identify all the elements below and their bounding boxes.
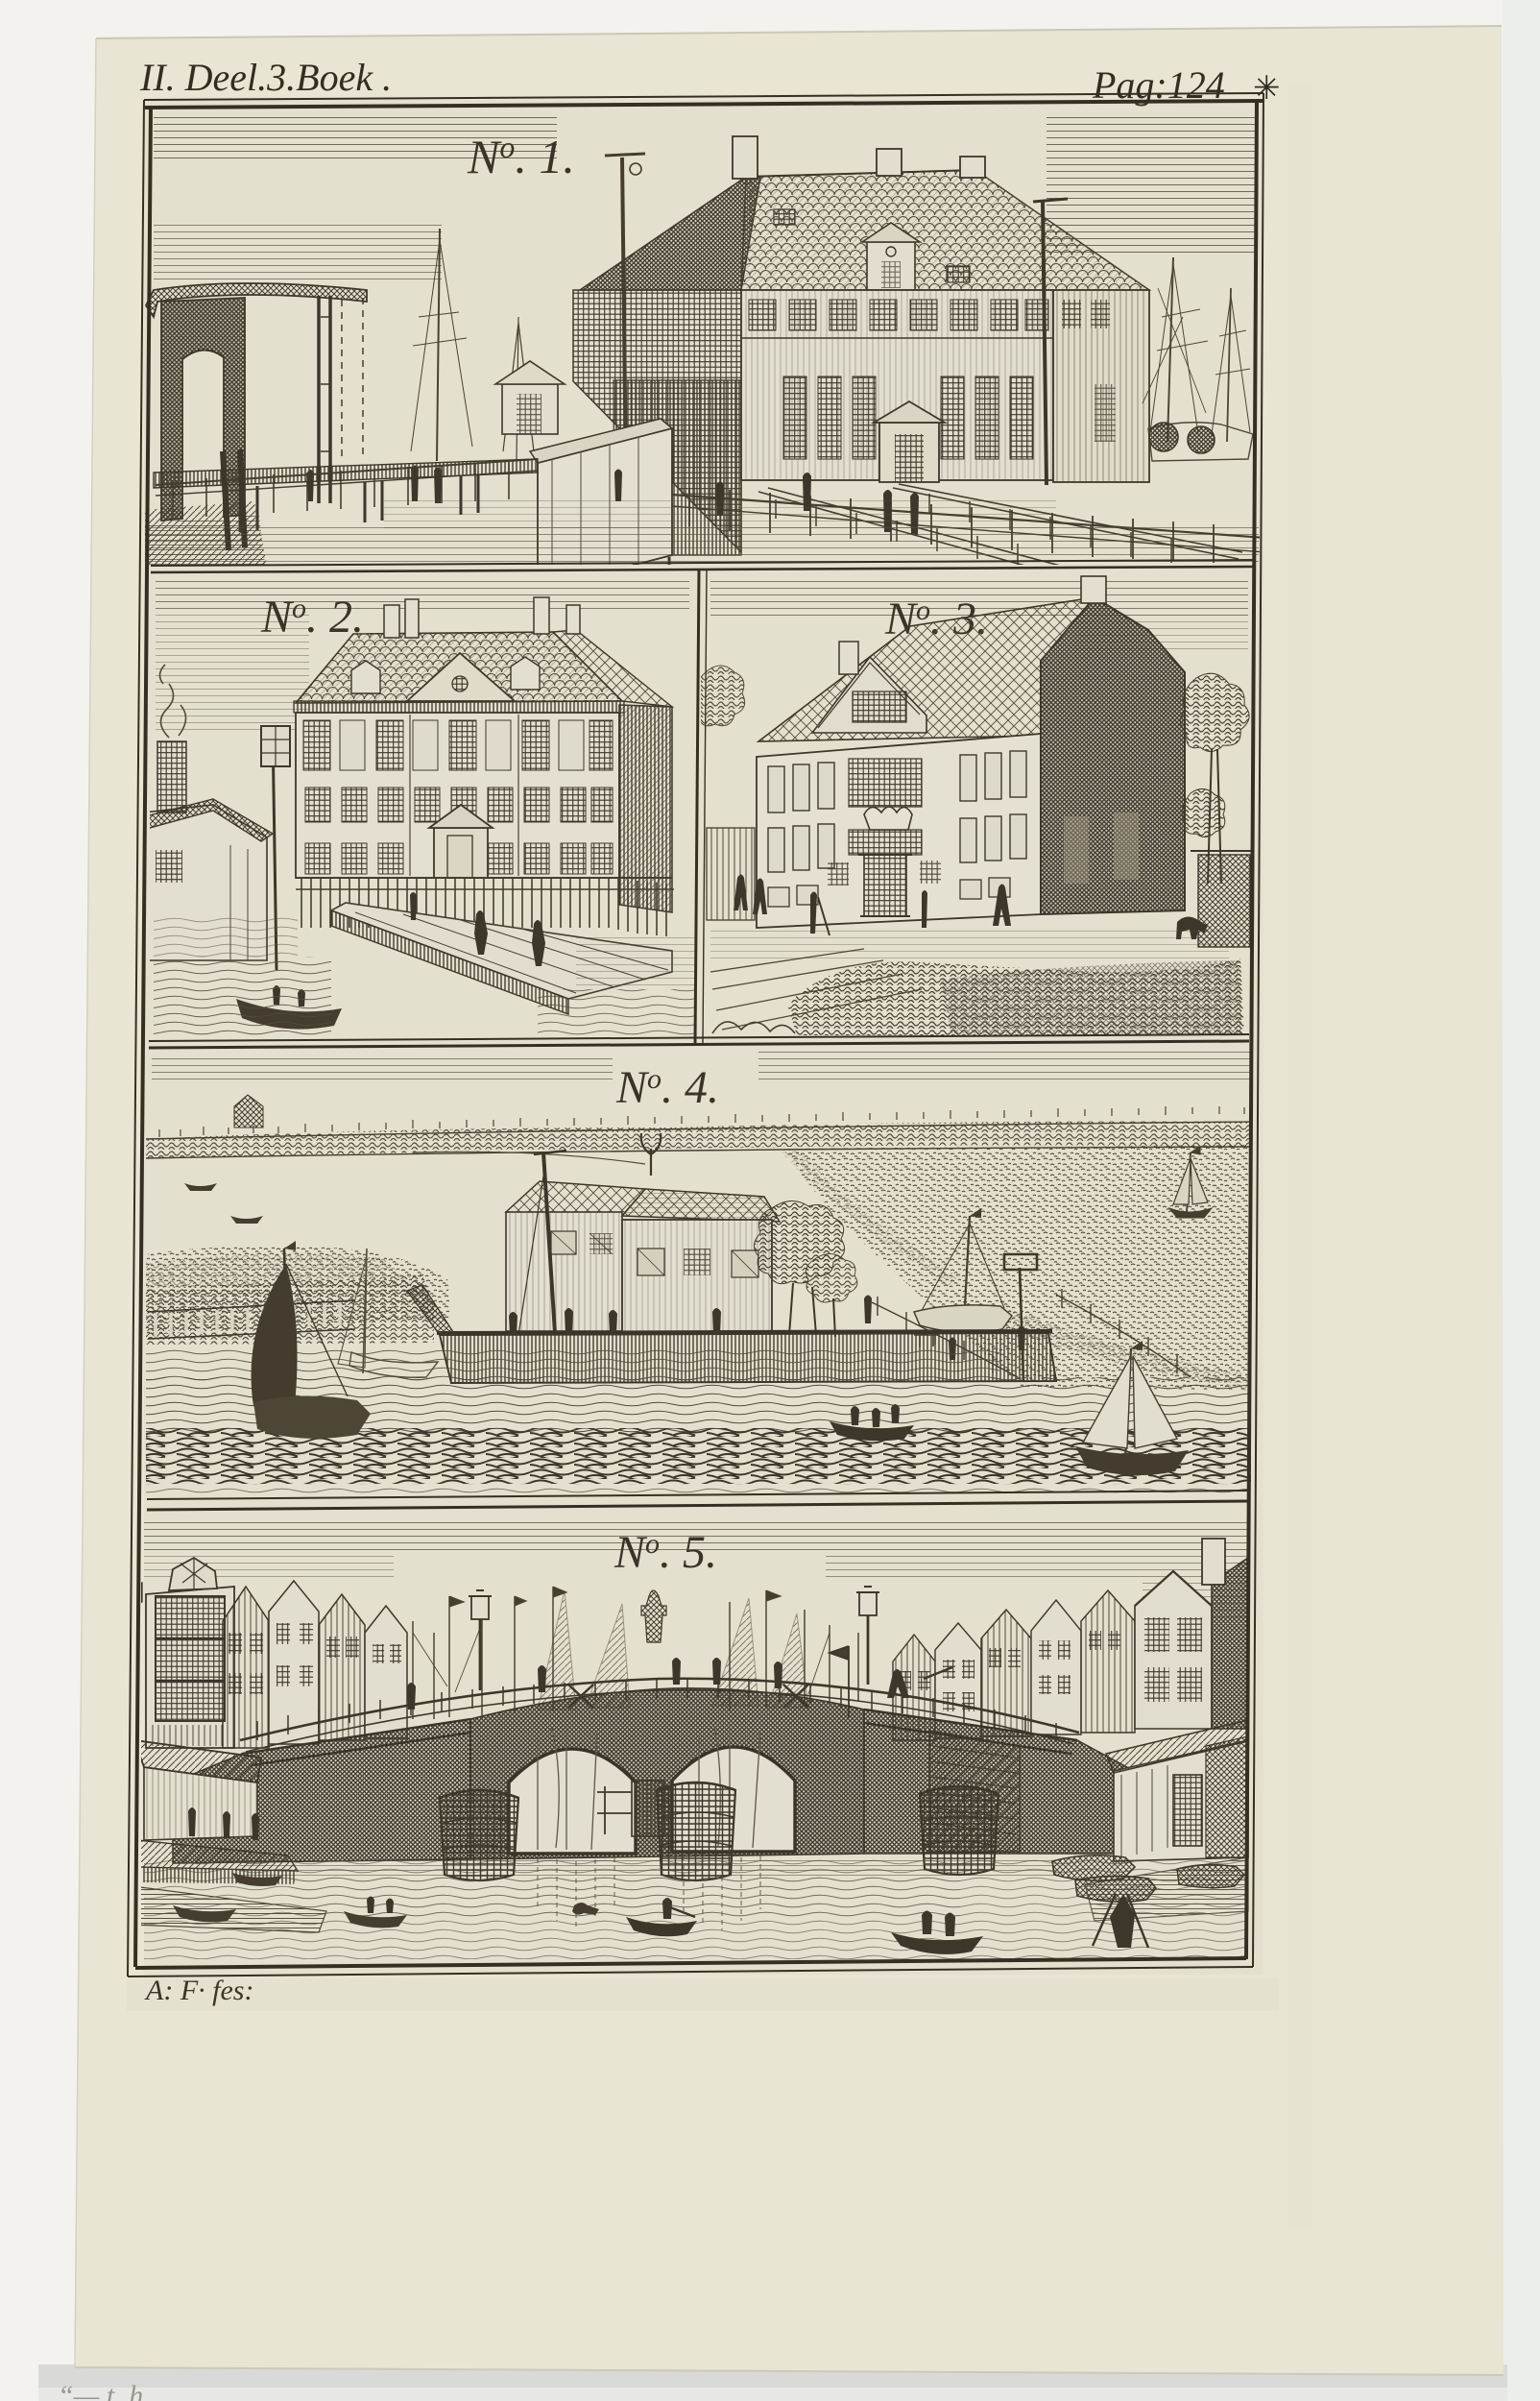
svg-text:“— t. h…: “— t. h… bbox=[58, 2380, 169, 2401]
svg-text:II. Deel.3.Boek .: II. Deel.3.Boek . bbox=[139, 56, 392, 99]
svg-text:A: F· fes:: A: F· fes: bbox=[144, 1975, 253, 2006]
